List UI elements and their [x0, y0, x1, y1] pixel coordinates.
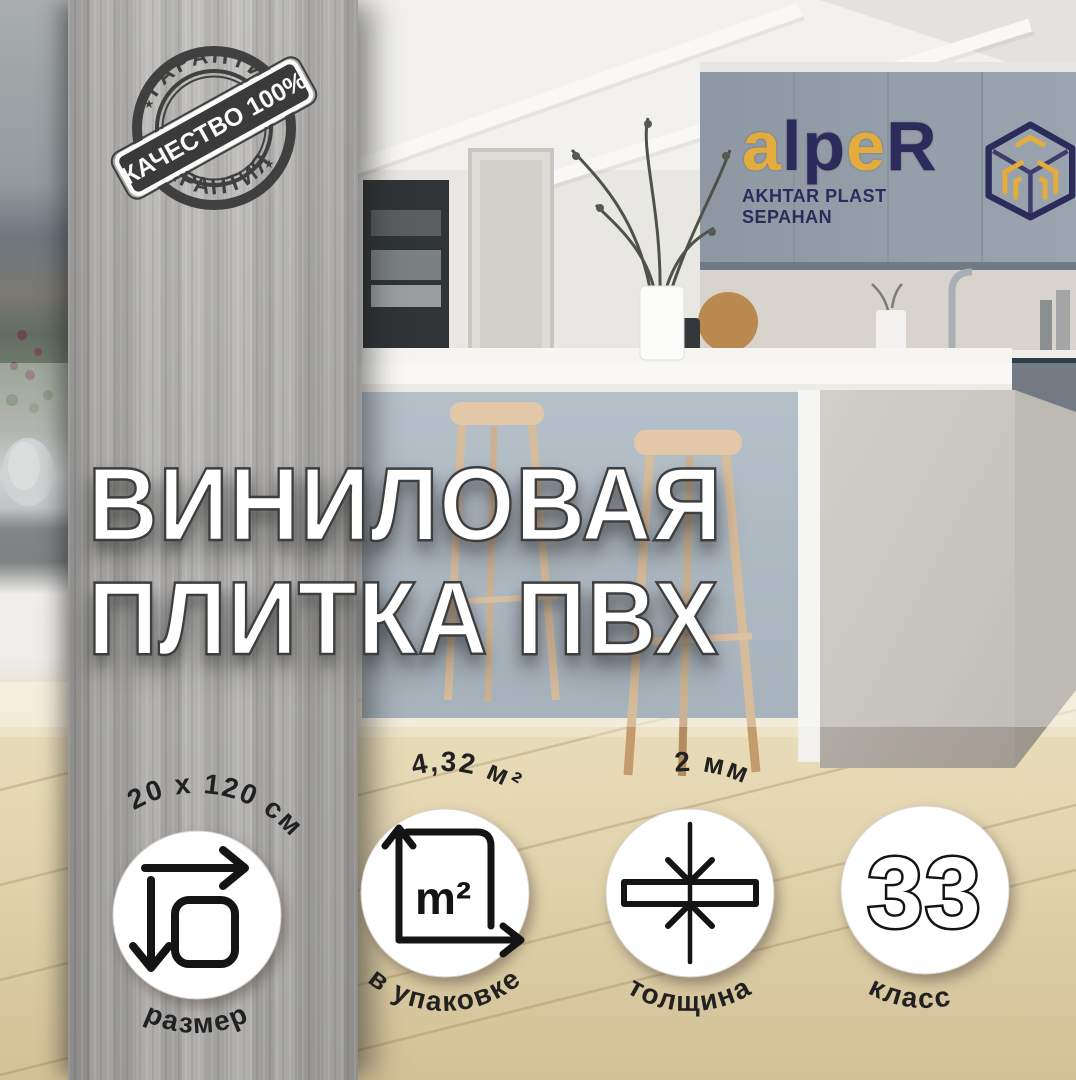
badge-size-value: 20 x 120 см	[122, 768, 310, 842]
brand-wordmark: alpeR	[742, 116, 979, 178]
star-icon: ★	[144, 97, 155, 111]
logo-letter: l	[782, 107, 802, 185]
badge-class-label: класс	[864, 970, 954, 1014]
badge-class: 33 класс	[775, 725, 1075, 1055]
badge-pack-value: 4,32 м²	[409, 746, 529, 798]
class-number: 33	[867, 837, 982, 949]
headline: ВИНИЛОВАЯ ПЛИТКА ПВХ	[88, 448, 723, 677]
svg-text:класс: класс	[864, 970, 954, 1014]
svg-text:4,32 м²: 4,32 м²	[409, 746, 529, 798]
logo-letter: a	[742, 107, 782, 185]
logo-letter: p	[802, 107, 846, 185]
brand-subtitle: AKHTAR PLAST SEPAHAN	[742, 186, 979, 228]
svg-text:размер: размер	[141, 997, 253, 1039]
area-icon-label: m²	[415, 872, 471, 924]
brand-logo: alpeR AKHTAR PLAST SEPAHAN	[742, 116, 1076, 228]
logo-letter: e	[846, 107, 886, 185]
cube-logo-icon	[985, 120, 1076, 222]
svg-text:20 x 120 см: 20 x 120 см	[122, 768, 310, 842]
badge-thickness-value: 2 мм	[674, 746, 755, 790]
guarantee-stamp: ГАРАНТИЯ ГАРАНТИЯ ★ ★ ★ ★ КАЧЕСТВО 100%	[86, 22, 342, 234]
headline-line1: ВИНИЛОВАЯ	[88, 448, 723, 562]
logo-letter: R	[886, 107, 938, 185]
svg-text:2 мм: 2 мм	[674, 746, 755, 790]
product-banner: ГАРАНТИЯ ГАРАНТИЯ ★ ★ ★ ★ КАЧЕСТВО 100% …	[0, 0, 1076, 1080]
badge-size-label: размер	[141, 997, 253, 1039]
headline-line2: ПЛИТКА ПВХ	[88, 562, 723, 676]
brand-logo-text: alpeR AKHTAR PLAST SEPAHAN	[742, 116, 979, 228]
star-icon: ★	[264, 157, 275, 171]
wall-art	[363, 180, 449, 372]
doorway	[470, 150, 552, 358]
